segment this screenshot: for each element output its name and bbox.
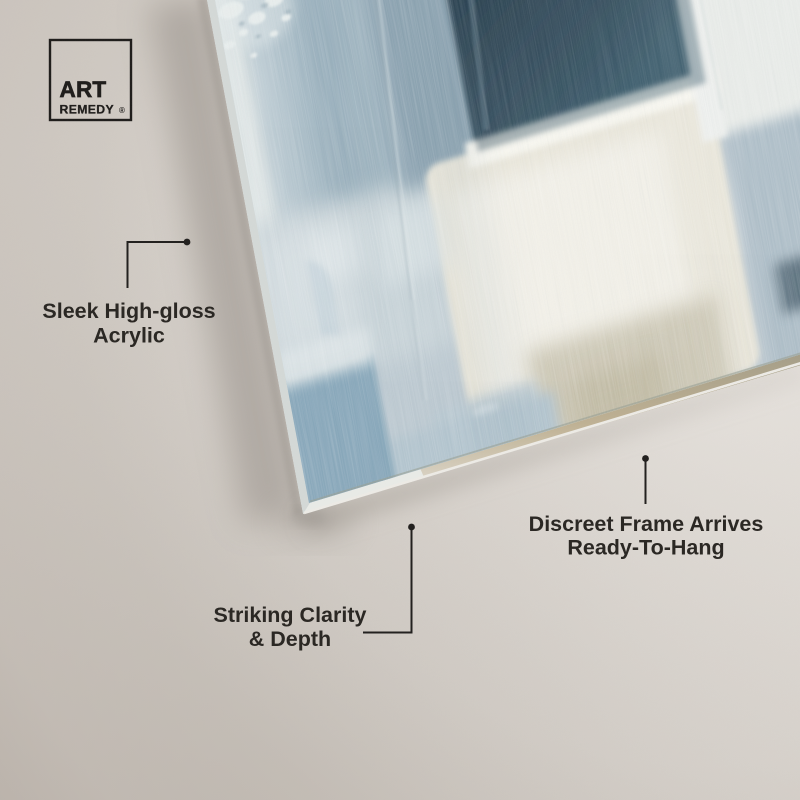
svg-text:Ready-To-Hang: Ready-To-Hang: [567, 536, 724, 560]
svg-text:Acrylic: Acrylic: [93, 324, 165, 348]
svg-text:Sleek High-gloss: Sleek High-gloss: [42, 299, 215, 323]
svg-text:& Depth: & Depth: [249, 627, 331, 651]
svg-text:Discreet Frame Arrives: Discreet Frame Arrives: [529, 512, 764, 536]
svg-text:Striking Clarity: Striking Clarity: [214, 603, 367, 627]
